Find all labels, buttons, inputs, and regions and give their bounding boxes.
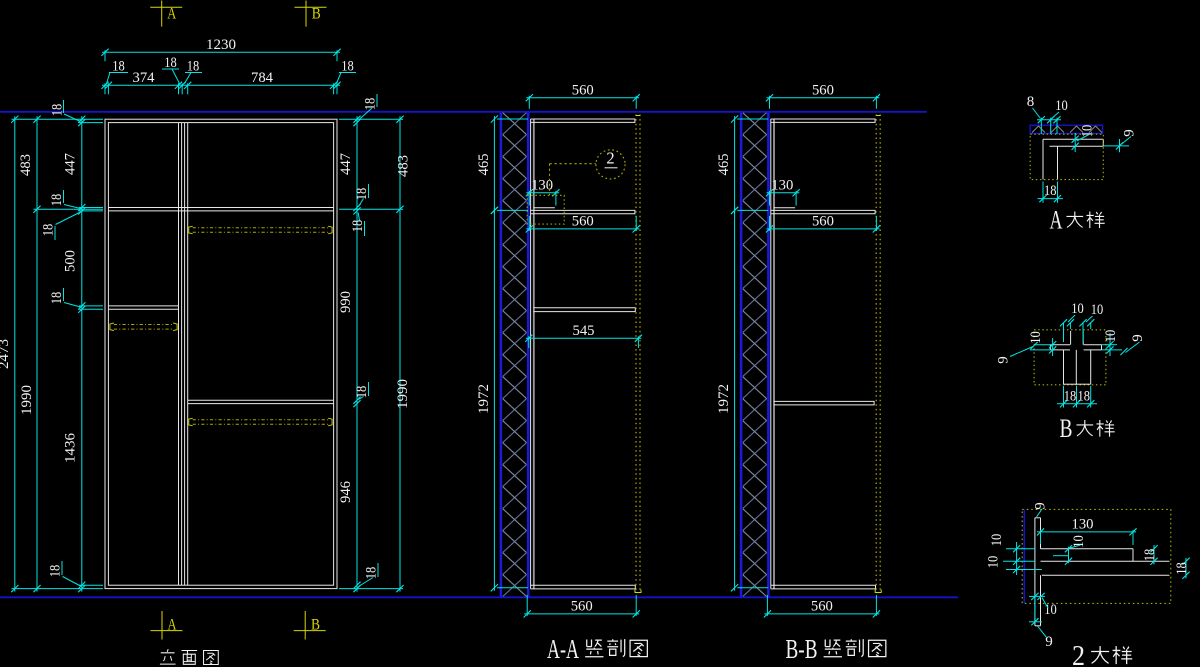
svg-text:18: 18	[1078, 388, 1091, 404]
svg-text:18: 18	[354, 386, 370, 399]
svg-text:9: 9	[996, 356, 1012, 364]
svg-text:465: 465	[716, 154, 732, 176]
svg-text:10: 10	[986, 556, 1002, 569]
svg-text:1972: 1972	[476, 384, 492, 414]
svg-text:545: 545	[573, 323, 595, 339]
svg-text:18: 18	[364, 567, 380, 580]
svg-text:1990: 1990	[19, 385, 35, 415]
svg-text:18: 18	[1142, 549, 1158, 562]
svg-text:A: A	[1050, 206, 1063, 235]
svg-text:2473: 2473	[0, 339, 12, 369]
svg-text:447: 447	[338, 153, 354, 175]
svg-text:10: 10	[1055, 98, 1068, 114]
svg-text:1230: 1230	[206, 37, 236, 53]
svg-text:9: 9	[1045, 634, 1053, 650]
svg-text:18: 18	[49, 292, 65, 305]
svg-text:10: 10	[989, 534, 1005, 547]
svg-text:18: 18	[363, 98, 379, 111]
svg-text:18: 18	[1044, 183, 1057, 199]
svg-text:483: 483	[396, 155, 412, 177]
svg-text:1972: 1972	[716, 384, 732, 414]
svg-text:9: 9	[1122, 129, 1138, 137]
svg-text:18: 18	[1064, 388, 1077, 404]
svg-text:18: 18	[354, 188, 370, 201]
svg-text:9: 9	[1130, 334, 1146, 342]
svg-text:9: 9	[1033, 502, 1049, 510]
svg-text:1436: 1436	[63, 433, 79, 464]
svg-text:483: 483	[18, 154, 34, 176]
svg-text:A: A	[167, 5, 177, 22]
svg-text:946: 946	[338, 481, 354, 503]
svg-text:10: 10	[1091, 302, 1104, 318]
svg-text:18: 18	[49, 194, 65, 207]
svg-text:B: B	[1060, 414, 1073, 443]
svg-text:8: 8	[1027, 94, 1035, 110]
svg-text:10: 10	[1103, 330, 1119, 343]
svg-text:18: 18	[1174, 562, 1190, 575]
svg-text:A: A	[168, 617, 178, 634]
svg-text:560: 560	[572, 82, 594, 98]
svg-text:784: 784	[251, 70, 273, 86]
svg-text:B-B: B-B	[786, 634, 818, 664]
svg-text:560: 560	[572, 213, 594, 229]
svg-text:130: 130	[1072, 517, 1094, 533]
svg-text:560: 560	[811, 598, 833, 614]
svg-text:B: B	[311, 617, 320, 634]
svg-text:130: 130	[771, 177, 793, 193]
svg-text:10: 10	[1028, 331, 1044, 344]
svg-text:B: B	[312, 5, 321, 22]
svg-text:18: 18	[350, 220, 366, 233]
svg-text:2: 2	[1072, 641, 1085, 667]
svg-text:447: 447	[63, 153, 79, 175]
svg-text:2: 2	[606, 149, 614, 168]
svg-text:18: 18	[40, 224, 56, 237]
svg-text:1990: 1990	[395, 379, 411, 409]
svg-text:560: 560	[812, 213, 834, 229]
svg-text:560: 560	[571, 598, 593, 614]
svg-text:18: 18	[48, 565, 64, 578]
svg-text:A-A: A-A	[547, 634, 579, 664]
svg-text:560: 560	[812, 82, 834, 98]
svg-text:465: 465	[476, 154, 492, 176]
svg-text:990: 990	[338, 291, 354, 313]
svg-text:10: 10	[1071, 301, 1084, 317]
svg-text:500: 500	[63, 250, 79, 272]
svg-text:374: 374	[133, 70, 155, 86]
